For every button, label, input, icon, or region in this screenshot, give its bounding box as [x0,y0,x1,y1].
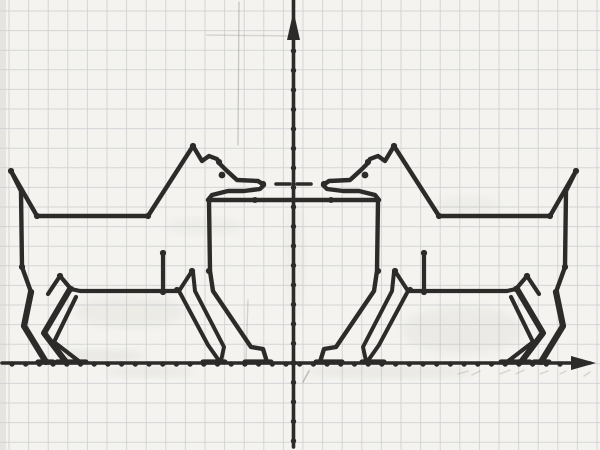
graph-paper-scan [0,0,600,450]
mirrored-dogs-coordinate-drawing [0,0,600,450]
dogs-shared-rectangle [208,197,379,203]
right-dog-drawing-eye [362,172,369,179]
scan-edge-shading [0,0,6,450]
left-dog-drawing-eye [219,172,226,179]
